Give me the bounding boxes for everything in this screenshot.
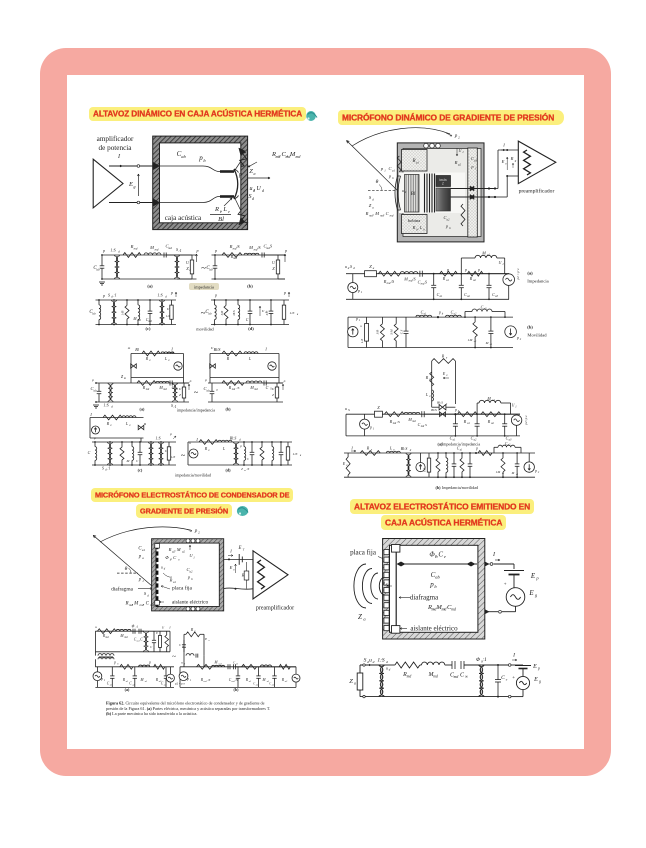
svg-text::1: :1 [136, 625, 139, 629]
svg-text:e: e [194, 630, 196, 633]
svg-text::1: :1 [178, 248, 181, 253]
svg-text:d: d [410, 449, 412, 452]
svg-text:S: S [350, 264, 352, 269]
svg-text:e: e [208, 639, 209, 642]
svg-text:1: 1 [359, 319, 361, 322]
svg-text:a: a [254, 171, 256, 176]
svg-text::1: :1 [482, 657, 487, 663]
svg-text:md: md [124, 636, 128, 639]
svg-text:e: e [446, 356, 448, 360]
svg-text:1: 1 [515, 406, 517, 409]
svg-text:Z: Z [442, 182, 444, 186]
svg-text:Bl: Bl [218, 216, 224, 223]
svg-text:R: R [204, 446, 208, 451]
svg-text:a2: a2 [467, 295, 470, 298]
svg-text:md: md [454, 675, 459, 679]
svg-text:d: d [147, 593, 149, 597]
svg-text:M: M [403, 277, 408, 282]
svg-text:U: U [272, 260, 276, 265]
svg-text:/S: /S [256, 245, 260, 250]
svg-text:C: C [179, 643, 182, 647]
svg-text:p: p [189, 379, 192, 383]
svg-text:p2 = p´e: p2 = p´e [516, 268, 520, 281]
svg-text:1:S: 1:S [103, 403, 108, 408]
svg-text:amplificador: amplificador [97, 135, 134, 143]
svg-text:, M: , M [287, 151, 296, 158]
svg-text:p: p [239, 444, 242, 448]
svg-text:/S: /S [246, 467, 250, 471]
svg-text:I: I [492, 552, 496, 558]
svg-text:e: e [233, 567, 235, 571]
svg-text:g: g [515, 159, 517, 163]
svg-text:θ: θ [376, 179, 379, 185]
svg-text:M: M [140, 678, 145, 682]
svg-text:R: R [214, 206, 219, 213]
svg-text:Figura 62. Circuito equivalent: Figura 62. Circuito equivalente del micr… [106, 701, 265, 706]
svg-text:e: e [446, 374, 448, 377]
svg-text:ab: ab [96, 268, 100, 272]
svg-text:R: R [366, 446, 370, 451]
svg-text:(a): (a) [125, 687, 130, 692]
svg-text:a2: a2 [182, 549, 186, 553]
svg-text:placa fija: placa fija [350, 549, 377, 557]
svg-text:+: + [512, 676, 515, 681]
svg-text:U: U [272, 387, 275, 391]
svg-text:~: ~ [181, 451, 186, 460]
svg-text:d: d [373, 660, 375, 664]
svg-text:R: R [106, 421, 110, 426]
svg-text:a: a [297, 313, 299, 316]
svg-text:E: E [532, 664, 537, 670]
svg-text:1/R: 1/R [468, 338, 474, 342]
svg-text:M: M [248, 245, 253, 250]
svg-text:b: b [442, 313, 444, 316]
svg-text:g: g [134, 184, 136, 189]
svg-text:1:S: 1:S [110, 248, 115, 253]
svg-text:C: C [501, 675, 505, 681]
svg-text:, M: , M [132, 602, 140, 607]
svg-text:a: a [363, 617, 366, 622]
svg-text:a1: a1 [467, 422, 470, 425]
svg-text:(b): (b) [234, 687, 240, 692]
svg-text:C: C [150, 645, 153, 649]
svg-text:I: I [195, 437, 198, 442]
svg-text:a3: a3 [509, 439, 512, 442]
svg-text:ab: ab [209, 268, 213, 272]
svg-text:E: E [442, 372, 446, 376]
svg-text:p: p [214, 293, 217, 298]
svg-text:p: p [91, 378, 94, 382]
svg-text:aislante eléctrico: aislante eléctrico [172, 600, 209, 606]
svg-text:p: p [438, 311, 441, 315]
svg-text:md: md [218, 662, 222, 665]
svg-text:ab: ab [92, 312, 96, 316]
svg-text:E: E [533, 677, 538, 683]
svg-text:p: p [446, 267, 449, 272]
svg-text:a: a [372, 206, 374, 210]
svg-text:md: md [433, 675, 438, 679]
svg-text:U: U [179, 387, 182, 391]
svg-text:placa fija: placa fija [172, 585, 193, 592]
svg-text:E: E [342, 462, 346, 466]
svg-text:U: U [512, 404, 515, 408]
svg-text:a1: a1 [446, 279, 449, 282]
svg-text:e: e [371, 449, 373, 452]
svg-text:1/Z: 1/Z [171, 455, 175, 459]
svg-text:a3: a3 [164, 683, 167, 686]
svg-text:bobina: bobina [408, 218, 421, 223]
svg-text:θ: θ [125, 566, 128, 572]
svg-text:(b): (b) [247, 284, 253, 289]
svg-text:p: p [148, 661, 151, 665]
svg-text:a: a [142, 556, 144, 560]
svg-text:1:S: 1:S [155, 437, 160, 441]
svg-text:p: p [204, 378, 207, 382]
svg-text:S/R: S/R [376, 330, 380, 334]
svg-text:Impedancia: Impedancia [527, 279, 548, 284]
svg-text:p: p [93, 436, 96, 440]
svg-text:u: u [402, 189, 404, 193]
svg-text:a2: a2 [502, 473, 505, 475]
svg-text:d: d [353, 266, 355, 270]
svg-text:m: m [124, 376, 127, 380]
svg-text:e: e [129, 423, 131, 427]
svg-text::1: :1 [113, 293, 116, 298]
svg-text:1: 1 [373, 428, 375, 431]
svg-text:I: I [502, 143, 505, 148]
svg-text:p: p [369, 426, 372, 430]
svg-text:a1: a1 [416, 161, 420, 165]
svg-text:p: p [102, 248, 105, 253]
svg-text:a2: a2 [458, 163, 462, 167]
svg-text:I: I [89, 412, 92, 417]
svg-text:d: d [118, 250, 120, 254]
svg-text:, L: , L [220, 206, 227, 213]
svg-text::1: :1 [107, 467, 110, 471]
svg-text:md: md [168, 246, 172, 250]
svg-text:Z: Z [179, 393, 181, 397]
svg-text:ab: ab [208, 312, 212, 316]
svg-text:d: d [262, 188, 265, 193]
svg-text:1/Z: 1/Z [423, 468, 427, 472]
svg-text:/S: /S [390, 280, 394, 284]
svg-text:u: u [161, 566, 163, 570]
svg-text:R: R [168, 547, 172, 552]
svg-text:p: p [238, 172, 242, 178]
svg-text:S: S [108, 293, 110, 298]
svg-text:L: L [425, 392, 429, 397]
svg-text:R: R [124, 602, 128, 607]
svg-text:Impedancia/movilidad: Impedancia/movilidad [442, 485, 478, 490]
svg-text:a1: a1 [236, 662, 238, 665]
svg-text:md: md [254, 388, 258, 391]
svg-text:md: md [105, 636, 109, 639]
svg-text:, M: , M [373, 211, 379, 217]
svg-text:Z: Z [272, 266, 275, 271]
svg-text:1/R: 1/R [496, 470, 500, 474]
svg-text:R: R [510, 156, 514, 161]
svg-text:(a): (a) [140, 407, 145, 412]
svg-text:E: E [128, 181, 133, 188]
svg-text:M: M [126, 459, 131, 463]
svg-text:a3: a3 [495, 295, 498, 298]
svg-text:p: p [535, 576, 539, 581]
svg-text:p: p [477, 268, 480, 272]
svg-text:p: p [283, 290, 286, 295]
svg-text:a1: a1 [440, 295, 443, 298]
svg-text:u: u [95, 625, 97, 629]
svg-text:R: R [365, 211, 369, 216]
svg-text:Bl/S: Bl/S [431, 408, 437, 412]
svg-text:g: g [535, 593, 538, 598]
svg-text:md: md [146, 388, 150, 391]
svg-text:e: e [506, 678, 508, 682]
svg-text:Movilidad: Movilidad [527, 333, 547, 338]
svg-text:p: p [169, 432, 172, 436]
svg-text:md: md [232, 388, 236, 391]
svg-text:u: u [345, 406, 347, 411]
svg-text:, C: , C [143, 602, 150, 607]
svg-text:M: M [486, 396, 491, 401]
svg-text:ab: ab [435, 575, 440, 580]
svg-text:p: p [196, 248, 199, 253]
svg-text:S: S [348, 408, 350, 412]
svg-text:md: md [163, 388, 167, 391]
svg-text:R: R [425, 375, 429, 380]
svg-text:(b): (b) [527, 325, 533, 330]
svg-text:I: I [117, 154, 121, 160]
svg-text:Impedancia/impedancia: Impedancia/impedancia [442, 441, 480, 446]
svg-text:a2: a2 [491, 422, 494, 425]
svg-text:a1: a1 [142, 548, 146, 552]
svg-text:Z: Z [358, 613, 362, 621]
svg-text:a3: a3 [474, 158, 478, 162]
svg-text:md: md [407, 675, 412, 679]
svg-text:a2: a2 [285, 680, 288, 683]
svg-text:M: M [485, 341, 489, 345]
svg-text:md: md [390, 214, 394, 218]
svg-text:R: R [190, 628, 194, 632]
svg-text:e: e [429, 377, 431, 381]
svg-text:I: I [168, 626, 171, 630]
svg-text:p: p [357, 288, 360, 293]
svg-text:R: R [226, 356, 230, 361]
svg-text:p: p [454, 408, 457, 412]
svg-text:u: u [386, 666, 388, 671]
svg-text:p: p [464, 268, 467, 272]
svg-text:a1: a1 [126, 680, 129, 683]
svg-text:p: p [537, 667, 540, 671]
svg-text:L: L [164, 356, 168, 361]
svg-text:a1: a1 [392, 169, 396, 173]
svg-text:md: md [150, 603, 154, 607]
svg-text:I: I [350, 446, 353, 451]
svg-text:L: L [248, 356, 252, 361]
svg-text:(a): (a) [147, 284, 153, 289]
svg-text:a1: a1 [110, 683, 113, 686]
svg-text:(c): (c) [146, 326, 151, 331]
svg-text:u: u [189, 441, 191, 445]
svg-text:a1: a1 [145, 680, 148, 683]
svg-text:u: u [181, 661, 183, 665]
svg-text:movilidad: movilidad [196, 327, 214, 332]
svg-text:u: u [345, 264, 347, 269]
svg-text:1: 1 [361, 290, 363, 294]
svg-text:, C: , C [435, 551, 444, 559]
svg-text:ab: ab [94, 389, 98, 393]
svg-text:/S: /S [236, 386, 240, 390]
svg-text:I: I [512, 653, 516, 659]
svg-text:e: e [444, 554, 446, 559]
svg-text:M: M [262, 678, 267, 682]
svg-text:Bl:S: Bl:S [437, 401, 443, 405]
svg-text:d: d [184, 662, 186, 665]
svg-text:I: I [229, 549, 232, 554]
svg-text:Z: Z [272, 393, 274, 397]
svg-text:C: C [140, 638, 143, 642]
svg-text:a2: a2 [447, 217, 451, 221]
svg-text:diafragma: diafragma [410, 594, 439, 602]
svg-text:p: p [475, 447, 478, 451]
svg-text:E: E [229, 565, 233, 570]
svg-text:e: e [149, 358, 151, 362]
svg-text:T: T [243, 547, 245, 551]
svg-text:d: d [389, 668, 391, 672]
svg-text:E: E [204, 637, 208, 641]
svg-text:md: md [296, 154, 302, 159]
svg-text:C: C [266, 385, 269, 390]
svg-text:impedancia/movilidad: impedancia/movilidad [175, 473, 211, 478]
svg-text:md: md [134, 247, 138, 251]
svg-text:md: md [233, 256, 237, 260]
svg-text:d: d [446, 403, 448, 406]
svg-text:(b): (b) [225, 407, 231, 412]
svg-text:S/M: S/M [390, 329, 394, 334]
svg-text:1/Z: 1/Z [293, 452, 298, 456]
svg-text:caja acústica: caja acústica [165, 214, 202, 222]
svg-text:(d): (d) [225, 468, 231, 473]
svg-text:diafragma: diafragma [111, 586, 133, 593]
svg-text:1: 1 [190, 679, 192, 682]
svg-text:p: p [102, 293, 105, 298]
svg-text:preamplificador: preamplificador [519, 188, 555, 195]
svg-text:md: md [148, 320, 152, 323]
svg-text:p2=p e: p2=p e [524, 415, 528, 426]
svg-text:p: p [170, 290, 173, 295]
svg-text:e: e [182, 645, 183, 648]
svg-text:Bl: Bl [135, 347, 139, 352]
svg-text:1/Z: 1/Z [290, 311, 295, 315]
svg-text:a: a [373, 266, 375, 270]
svg-text:a2: a2 [190, 569, 194, 573]
svg-text:Φ: Φ [165, 555, 169, 560]
svg-text:p: p [516, 336, 519, 340]
svg-text:/S: /S [412, 278, 416, 282]
svg-text:M/S: M/S [232, 310, 236, 317]
svg-text:Z: Z [377, 405, 380, 410]
svg-text:I: I [170, 347, 173, 352]
svg-text:2: 2 [198, 531, 200, 535]
svg-text:a2: a2 [474, 340, 477, 343]
svg-text:Z: Z [241, 467, 243, 471]
svg-text:b: b [392, 176, 394, 180]
svg-text:a: a [300, 454, 302, 457]
svg-text:md: md [412, 420, 416, 423]
svg-text:ab: ab [207, 389, 211, 393]
svg-text:a1: a1 [460, 449, 463, 452]
svg-text:2: 2 [520, 338, 522, 341]
svg-text:a1: a1 [173, 580, 177, 584]
svg-text:1/Z: 1/Z [360, 339, 364, 343]
svg-text:U: U [186, 260, 190, 265]
svg-text:E: E [155, 631, 158, 635]
svg-text:a1: a1 [249, 680, 252, 683]
svg-text:1:S: 1:S [157, 293, 162, 298]
svg-text:b: b [117, 662, 119, 665]
svg-text:2: 2 [458, 136, 460, 140]
svg-text:/S: /S [396, 420, 400, 424]
svg-text:a1: a1 [487, 253, 491, 257]
svg-text:d: d [386, 660, 388, 664]
svg-text:R: R [441, 354, 445, 359]
svg-text:~: ~ [172, 653, 176, 661]
svg-text:S: S [215, 389, 219, 391]
svg-text:d: d [252, 196, 255, 201]
svg-text:/S: /S [207, 678, 211, 682]
svg-text:Bl:S: Bl:S [401, 447, 408, 451]
svg-text:p: p [186, 677, 189, 681]
svg-text:Bl/S: Bl/S [214, 347, 221, 352]
svg-text:R: R [412, 225, 416, 230]
svg-text:~: ~ [194, 388, 199, 397]
svg-text:p: p [284, 248, 287, 253]
svg-text:e: e [208, 448, 210, 452]
svg-text:md: md [137, 319, 141, 322]
svg-text:Φ: Φ [132, 625, 135, 629]
svg-text:U: U [162, 626, 165, 630]
svg-text:C: C [88, 450, 91, 455]
svg-text:e: e [153, 647, 154, 650]
svg-text:E: E [528, 589, 534, 597]
svg-text:Bl:S: Bl:S [230, 437, 237, 441]
svg-text:e: e [228, 209, 230, 214]
svg-text:C S: C S [400, 329, 404, 334]
svg-text:de potencia: de potencia [99, 144, 133, 152]
svg-text:Z: Z [349, 678, 353, 685]
svg-text:1:S: 1:S [377, 658, 385, 664]
svg-text:C: C [247, 457, 250, 461]
svg-text:(a): (a) [527, 271, 533, 276]
svg-text:d: d [372, 198, 374, 202]
svg-text:L: L [125, 421, 129, 426]
svg-text:1: 1 [104, 679, 106, 682]
svg-text:2: 2 [538, 471, 540, 474]
svg-text:p: p [138, 578, 142, 583]
svg-text:M: M [149, 245, 154, 250]
svg-text:(b) La parte mecánica ha sido: (b) La parte mecánica ha sido transferid… [106, 711, 197, 716]
svg-text:impedancia: impedancia [194, 285, 214, 290]
svg-text:S: S [102, 467, 104, 471]
svg-text:a: a [354, 681, 356, 686]
svg-text:E: E [238, 546, 242, 551]
svg-text:(c): (c) [138, 468, 143, 473]
svg-text:1: 1 [384, 169, 386, 173]
svg-text:u: u [383, 580, 385, 585]
svg-text:(b): (b) [435, 485, 441, 490]
svg-text:p: p [534, 469, 537, 473]
svg-text:p: p [214, 248, 217, 253]
svg-text:a1: a1 [490, 343, 493, 346]
